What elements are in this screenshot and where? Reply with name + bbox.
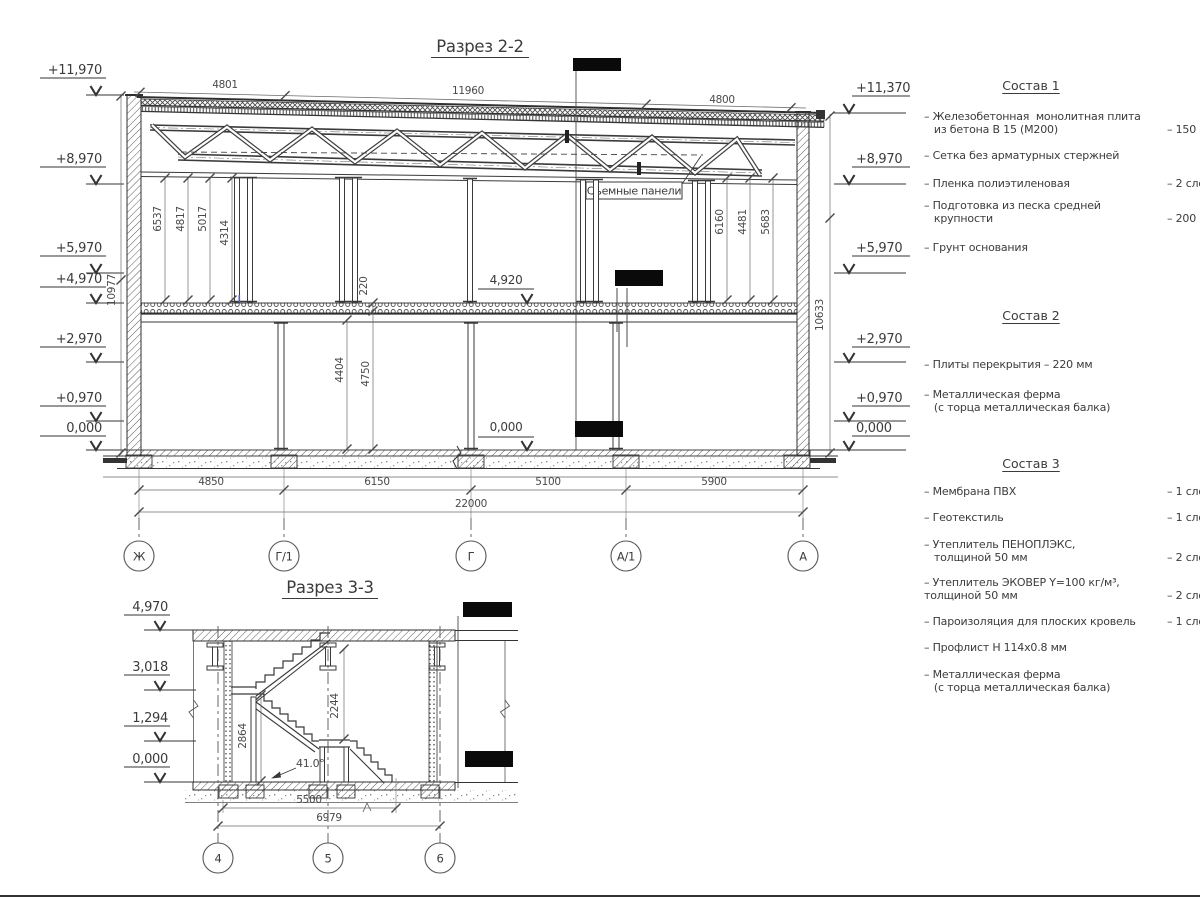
truss-joint-mark — [637, 162, 641, 175]
landing-post — [251, 697, 256, 782]
break-symbol — [363, 803, 371, 812]
elevation-label: +8,970 — [56, 152, 102, 167]
elevation-label: +0,970 — [56, 391, 102, 406]
elevation-marks-left: +11,970 +8,970 +5,970 +4,970 +2,970 +0,9… — [40, 63, 124, 450]
section-3-3: Разрез 3-3 41.0° — [124, 578, 518, 873]
foundation-pad — [337, 785, 355, 798]
height-dimensions-left: 6537 4817 5017 4314 — [152, 174, 237, 305]
lower-flight-steps — [350, 741, 392, 782]
elevation-label: +5,970 — [856, 241, 902, 256]
dim-label: 10977 — [106, 274, 118, 306]
lower-columns — [274, 322, 623, 450]
legend-item: – Геотекстиль– 1 слой — [924, 511, 1200, 524]
foundation-pad — [613, 455, 639, 468]
right-wall — [795, 112, 811, 456]
axis-bubble-label: 6 — [436, 852, 443, 866]
dim-label: 22000 — [455, 498, 487, 510]
composition-3: Состав 3 – Мембрана ПВХ– 1 слой – Геотек… — [902, 456, 1160, 716]
steel-truss — [141, 125, 797, 185]
left-wall — [125, 95, 143, 456]
axes-2-2: Ж Г/1 Г А/1 А — [124, 518, 818, 571]
dim-label: 4801 — [212, 79, 238, 91]
mid-flight-steps — [256, 694, 319, 741]
elevation-label: +11,970 — [48, 63, 102, 78]
legend-item: – Сетка без арматурных стержней — [924, 149, 1200, 162]
stair-top-slab — [193, 630, 518, 641]
height-dimensions-right: 6160 4481 5683 — [714, 174, 778, 305]
dim-label: 220 — [358, 276, 370, 295]
legend-item: – Утеплитель ПЕНОПЛЭКС, толщиной 50 мм– … — [924, 538, 1200, 564]
legend-item: – Металлическая ферма (с торца металличе… — [924, 668, 1200, 694]
legend-item-value: – 1 слой — [1167, 511, 1200, 524]
elevation-label: 1,294 — [132, 711, 168, 726]
legend-item: – Железобетонная монолитная плита из бет… — [924, 110, 1200, 136]
dim-label: 5500 — [296, 794, 322, 806]
legend-item-value: – 2 слоя — [1167, 551, 1200, 564]
elevation-label: 0,000 — [132, 752, 168, 767]
roof-edge-cap — [816, 110, 825, 119]
stair-angle: 41.0° — [271, 757, 325, 779]
axis-bubble-label: А/1 — [617, 550, 635, 564]
elevation-label: +2,970 — [56, 332, 102, 347]
truss-joint-mark — [565, 130, 569, 143]
composition-title: Состав 1 — [902, 78, 1160, 93]
legend-item: – Подготовка из песка средней крупности–… — [924, 199, 1200, 225]
sheet-frame-line — [0, 895, 1200, 897]
dim-label: 4817 — [175, 206, 187, 232]
elevation-marks-right: +11,370 +8,970 +5,970 +2,970 +0,970 0,00… — [834, 81, 910, 450]
section-2-2: Разрез 2-2 Съемные панели — [40, 37, 910, 571]
floor-mark-label: 4,920 — [490, 273, 523, 287]
legend-item: – Плиты перекрытия – 220 мм — [924, 358, 1200, 371]
composition-1: Состав 1 – Железобетонная монолитная пли… — [902, 78, 1160, 278]
bottom-dimensions: 4850 6150 5100 5900 22000 — [135, 469, 808, 518]
ground-slab — [103, 446, 838, 477]
composition-title: Состав 3 — [902, 456, 1160, 471]
legend-item-value: – 150 мм — [1167, 123, 1200, 136]
axis-bubble-label: 5 — [324, 852, 331, 866]
dim-label: 6160 — [714, 209, 726, 235]
dim-label: 11960 — [452, 85, 484, 97]
platform-post — [344, 747, 349, 782]
legend-item-value: – 200 мм — [1167, 212, 1200, 225]
dim-label: 2864 — [237, 723, 249, 749]
dim-label: 6537 — [152, 206, 164, 232]
legend-item-value: – 1 слой — [1167, 615, 1200, 628]
dim-label: 5900 — [701, 476, 727, 488]
elevation-label: +5,970 — [56, 241, 102, 256]
legend-item-value: – 2 слоя — [1167, 589, 1200, 602]
foundation-pad — [458, 455, 484, 468]
section-2-2-title: Разрез 2-2 — [436, 37, 523, 56]
axis-bubble-label: А — [799, 550, 807, 564]
foundation-pad — [126, 455, 152, 468]
dim-label: 6979 — [316, 812, 342, 824]
axis-bubble-label: Г/1 — [275, 550, 292, 564]
elevation-label: +4,970 — [56, 272, 102, 287]
elevation-label: +0,970 — [856, 391, 902, 406]
cad-artifact — [239, 295, 241, 303]
foundation-pad — [246, 785, 264, 798]
stair-walls — [189, 641, 510, 782]
elevation-label: 3,018 — [132, 660, 168, 675]
dim-label: 4314 — [219, 220, 231, 246]
legend-item: – Грунт основания — [924, 241, 1200, 254]
legend-item: – Профлист Н 114х0.8 мм — [924, 641, 1200, 654]
legend-item: – Пленка полиэтиленовая– 2 слоя — [924, 177, 1200, 190]
drawing-sheet: Разрез 2-2 Съемные панели — [0, 0, 1200, 900]
legend-item: – Утеплитель ЭКОВЕР Y=100 кг/м³, толщино… — [924, 576, 1200, 602]
floor-slab — [141, 303, 797, 322]
inner-marks: 4,920 0,000 — [478, 273, 534, 450]
dim-label: 4404 — [334, 357, 346, 383]
elevation-label: +2,970 — [856, 332, 902, 347]
materials-legend: Состав 1 – Железобетонная монолитная пли… — [902, 0, 1160, 900]
legend-item-value: – 1 слой — [1167, 485, 1200, 498]
dim-label: 4850 — [198, 476, 224, 488]
elevation-label: 4,970 — [132, 600, 168, 615]
dim-label: 10633 — [814, 299, 826, 331]
elevation-label: 0,000 — [66, 421, 102, 436]
axis-bubble-label: 4 — [214, 852, 221, 866]
dim-label: 4800 — [709, 94, 735, 106]
ground-mark-label: 0,000 — [490, 420, 523, 434]
composition-2: Состав 2 – Плиты перекрытия – 220 мм – М… — [902, 308, 1160, 428]
axis-bubble-label: Г — [468, 550, 475, 564]
dim-label: 5017 — [197, 206, 209, 232]
dim-label: 4750 — [360, 361, 372, 387]
legend-item-value: – 2 слоя — [1167, 177, 1200, 190]
dim-label: 2244 — [329, 693, 341, 719]
elevation-marks-3-3: 4,970 3,018 1,294 0,000 — [124, 600, 196, 782]
foundation-pad — [219, 785, 238, 798]
dim-label: 5100 — [535, 476, 561, 488]
angle-label: 41.0° — [296, 757, 325, 770]
dim-label: 5683 — [760, 209, 772, 235]
stair-ground — [185, 782, 518, 803]
dim-label: 4481 — [737, 209, 749, 235]
elevation-label: +8,970 — [856, 152, 902, 167]
section-3-3-title: Разрез 3-3 — [286, 578, 373, 597]
dim-label: 6150 — [364, 476, 390, 488]
composition-title: Состав 2 — [902, 308, 1160, 323]
legend-item: – Пароизоляция для плоских кровель– 1 сл… — [924, 615, 1200, 628]
legend-item: – Металлическая ферма (с торца металличе… — [924, 388, 1200, 414]
legend-item: – Мембрана ПВХ– 1 слой — [924, 485, 1200, 498]
foundation-pad — [421, 785, 439, 798]
panels-callout-label: Съемные панели — [587, 185, 682, 198]
elevation-label: 0,000 — [856, 421, 892, 436]
axis-bubble-label: Ж — [133, 550, 146, 564]
foundation-pad — [271, 455, 297, 468]
foundation-pad — [784, 455, 810, 468]
